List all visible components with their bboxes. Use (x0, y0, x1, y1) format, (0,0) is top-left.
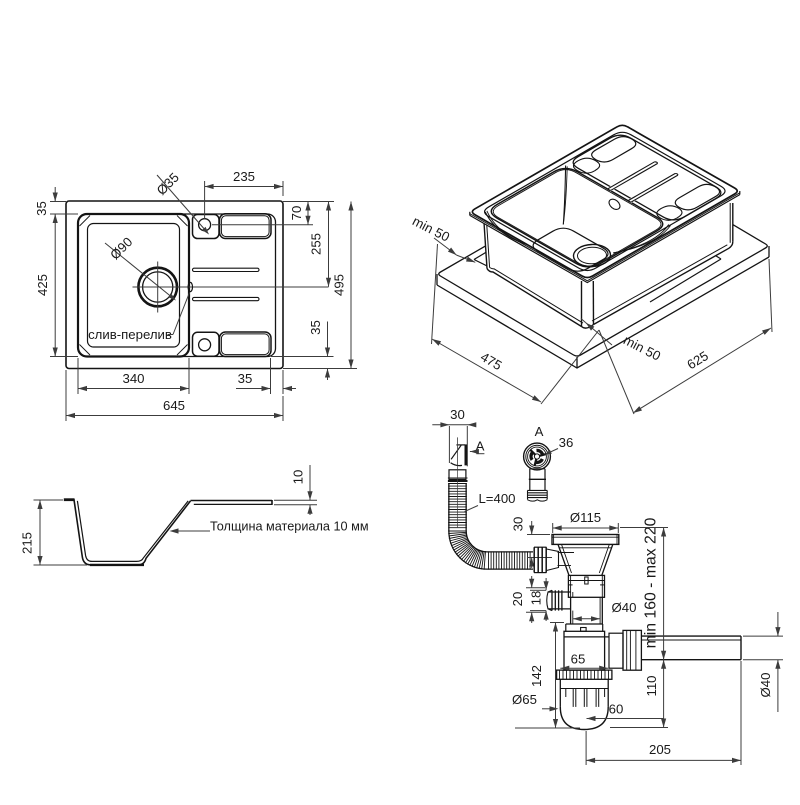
svg-text:70: 70 (289, 206, 304, 221)
svg-text:35: 35 (238, 371, 253, 386)
svg-text:65: 65 (571, 652, 586, 667)
svg-text:110: 110 (644, 675, 659, 696)
svg-text:A: A (535, 424, 544, 439)
svg-text:142: 142 (529, 665, 544, 687)
svg-text:min 160 - max 220: min 160 - max 220 (643, 517, 660, 648)
svg-text:Ø40: Ø40 (758, 673, 773, 698)
svg-text:340: 340 (122, 371, 144, 386)
svg-text:205: 205 (649, 742, 671, 757)
svg-text:495: 495 (332, 274, 347, 296)
svg-text:30: 30 (450, 407, 465, 422)
svg-text:255: 255 (309, 233, 324, 255)
svg-text:Ø40: Ø40 (612, 600, 637, 615)
svg-text:30: 30 (511, 517, 526, 532)
svg-text:Ø65: Ø65 (512, 692, 537, 707)
svg-text:слив-перелив: слив-перелив (88, 327, 172, 342)
svg-text:36: 36 (559, 435, 574, 450)
svg-text:L=400: L=400 (478, 491, 515, 506)
svg-text:235: 235 (233, 169, 255, 184)
svg-text:35: 35 (308, 320, 323, 335)
svg-text:10: 10 (291, 470, 306, 485)
svg-text:Толщина материала 10 мм: Толщина материала 10 мм (210, 520, 369, 534)
svg-text:18: 18 (529, 591, 544, 606)
svg-text:215: 215 (20, 532, 35, 554)
svg-text:Ø115: Ø115 (570, 510, 601, 525)
svg-text:20: 20 (510, 592, 525, 607)
svg-text:60: 60 (609, 702, 624, 717)
svg-text:645: 645 (163, 398, 185, 413)
svg-text:35: 35 (34, 201, 49, 216)
svg-text:425: 425 (35, 274, 50, 296)
